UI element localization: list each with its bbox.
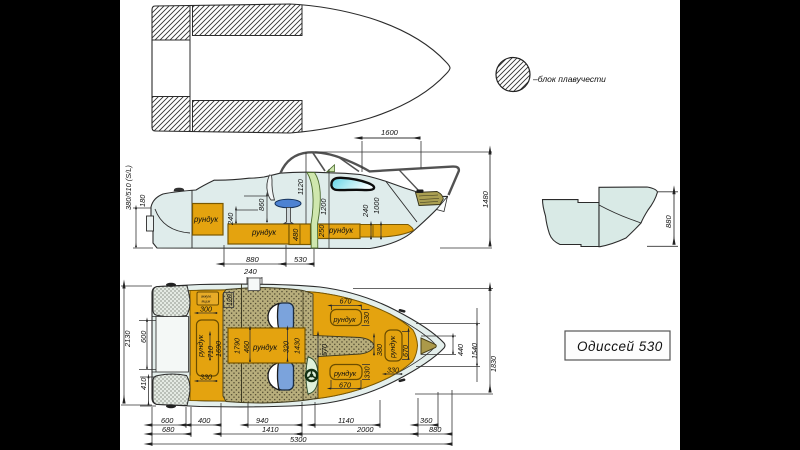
svg-text:360: 360 bbox=[420, 416, 433, 425]
svg-text:410: 410 bbox=[139, 377, 148, 390]
svg-text:860: 860 bbox=[257, 198, 266, 211]
svg-text:1000: 1000 bbox=[372, 197, 381, 214]
svg-text:1600: 1600 bbox=[381, 128, 399, 137]
svg-text:рундук: рундук bbox=[388, 335, 397, 359]
svg-text:330: 330 bbox=[363, 367, 372, 379]
svg-text:рундук: рундук bbox=[196, 334, 205, 358]
svg-text:940: 940 bbox=[256, 416, 269, 425]
svg-text:рундук: рундук bbox=[333, 369, 357, 378]
svg-text:Одиссей 530: Одиссей 530 bbox=[577, 339, 663, 354]
svg-text:рундук: рундук bbox=[252, 343, 277, 352]
svg-text:460: 460 bbox=[242, 341, 251, 353]
svg-text:570: 570 bbox=[320, 344, 329, 356]
svg-text:120: 120 bbox=[227, 294, 234, 306]
svg-text:1830: 1830 bbox=[489, 356, 498, 372]
svg-text:ящик: ящик bbox=[201, 300, 211, 304]
svg-text:320: 320 bbox=[282, 341, 291, 353]
svg-text:300: 300 bbox=[200, 305, 212, 314]
svg-text:680: 680 bbox=[162, 425, 175, 434]
svg-text:880: 880 bbox=[429, 425, 442, 434]
svg-text:330: 330 bbox=[362, 312, 371, 324]
svg-text:670: 670 bbox=[339, 381, 351, 390]
svg-text:380/510 (S/L): 380/510 (S/L) bbox=[124, 165, 133, 210]
svg-text:5300: 5300 bbox=[290, 435, 307, 444]
svg-text:1790: 1790 bbox=[233, 338, 242, 354]
svg-text:2000: 2000 bbox=[356, 425, 374, 434]
svg-text:1430: 1430 bbox=[293, 338, 302, 354]
svg-text:480: 480 bbox=[291, 228, 300, 241]
svg-text:600: 600 bbox=[161, 416, 174, 425]
svg-text:240: 240 bbox=[243, 267, 257, 276]
svg-text:аккум.: аккум. bbox=[201, 295, 212, 299]
svg-text:1140: 1140 bbox=[338, 416, 355, 425]
svg-text:670: 670 bbox=[340, 297, 352, 306]
svg-text:330: 330 bbox=[387, 366, 399, 375]
svg-text:240: 240 bbox=[226, 212, 235, 226]
svg-text:рундук: рундук bbox=[193, 215, 218, 224]
svg-text:180: 180 bbox=[138, 194, 147, 207]
svg-text:рундук: рундук bbox=[333, 315, 357, 324]
svg-text:670: 670 bbox=[401, 345, 410, 357]
svg-text:2130: 2130 bbox=[123, 330, 132, 348]
svg-text:1410: 1410 bbox=[262, 425, 279, 434]
svg-text:330: 330 bbox=[200, 373, 212, 382]
svg-text:1540: 1540 bbox=[470, 343, 479, 359]
svg-text:240: 240 bbox=[361, 204, 370, 218]
svg-text:250: 250 bbox=[317, 224, 326, 238]
svg-text:1480: 1480 bbox=[481, 190, 490, 208]
svg-text:440: 440 bbox=[456, 344, 465, 356]
svg-text:рундук: рундук bbox=[251, 228, 276, 237]
svg-text:880: 880 bbox=[246, 255, 259, 264]
svg-text:1200: 1200 bbox=[319, 198, 328, 215]
svg-text:600: 600 bbox=[139, 330, 148, 343]
svg-text:530: 530 bbox=[294, 255, 307, 264]
svg-text:880: 880 bbox=[664, 215, 673, 228]
svg-text:380: 380 bbox=[375, 344, 384, 356]
svg-text:рундук: рундук bbox=[328, 226, 353, 235]
svg-text:1120: 1120 bbox=[296, 178, 305, 195]
svg-text:1690: 1690 bbox=[214, 341, 223, 357]
svg-text:–блок плавучести: –блок плавучести bbox=[532, 74, 606, 84]
svg-text:400: 400 bbox=[198, 416, 211, 425]
